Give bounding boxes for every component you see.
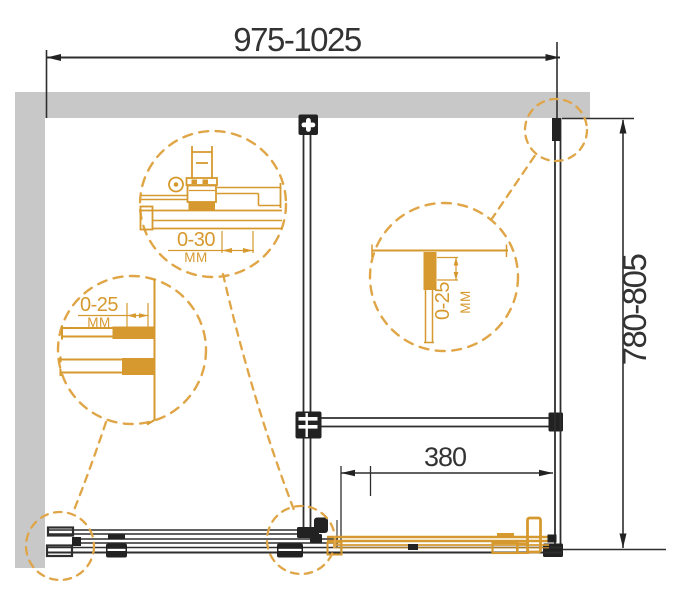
detail-circle-vertical-profile: 0-25 MM [370,203,518,351]
marker-circle-roller [267,506,335,574]
rail-end-cap [548,535,557,543]
dimension-depth-label: 780-805 [616,255,653,366]
side-glass-panel [543,118,563,557]
shower-plan-svg: 975-1025 780-805 380 [0,0,687,600]
bottom-rail [47,518,562,558]
leader-line [491,154,536,220]
arrow-left-icon [341,470,355,477]
rail-stop [408,544,418,550]
track-clip [108,535,125,540]
inner-glass-panel [321,413,563,432]
roller-mechanism [141,146,283,230]
door-clip [497,533,514,538]
detail-wall-unit: MM [87,315,111,330]
leader-line [74,422,106,510]
detail-dimension-0-25-vertical: 0-25 MM [432,258,473,321]
detail-leaders [26,99,587,580]
detail-roller-unit: MM [184,250,208,265]
track-clip [72,537,81,546]
detail-roller-range: 0-30 [177,229,215,251]
arrow-right-icon [546,54,561,61]
sliding-door-rail [327,518,557,555]
leader-line [223,274,294,510]
arrow-right-icon [539,470,553,477]
dimension-width-label: 975-1025 [233,21,361,58]
roller-bracket [106,544,127,558]
detail-circle-roller: 0-30 MM [140,131,286,277]
technical-drawing-canvas: 975-1025 780-805 380 [0,0,687,600]
detail-vertical-unit: MM [458,290,473,314]
wall-top [15,92,590,118]
dimension-opening: 380 [337,442,553,551]
detail-dimension-0-30: 0-30 MM [168,229,254,265]
detail-wall-range: 0-25 [80,294,118,316]
wall [15,92,590,568]
detail-vertical-range: 0-25 [432,282,454,320]
wall-left [15,92,45,568]
dimension-depth: 780-805 [562,119,666,550]
partition-glass-panel [296,115,322,529]
arrow-down-icon [620,534,627,549]
detail-circle-wall-profile: 0-25 MM [58,276,206,425]
top-bracket [552,118,561,141]
arrow-up-icon [620,119,627,134]
dimension-opening-label: 380 [424,442,466,472]
connector-clamp [296,412,322,439]
roller-bracket [277,544,303,558]
detail-dimension-0-25-wall: 0-25 MM [78,294,148,332]
arrow-left-icon [47,54,62,61]
